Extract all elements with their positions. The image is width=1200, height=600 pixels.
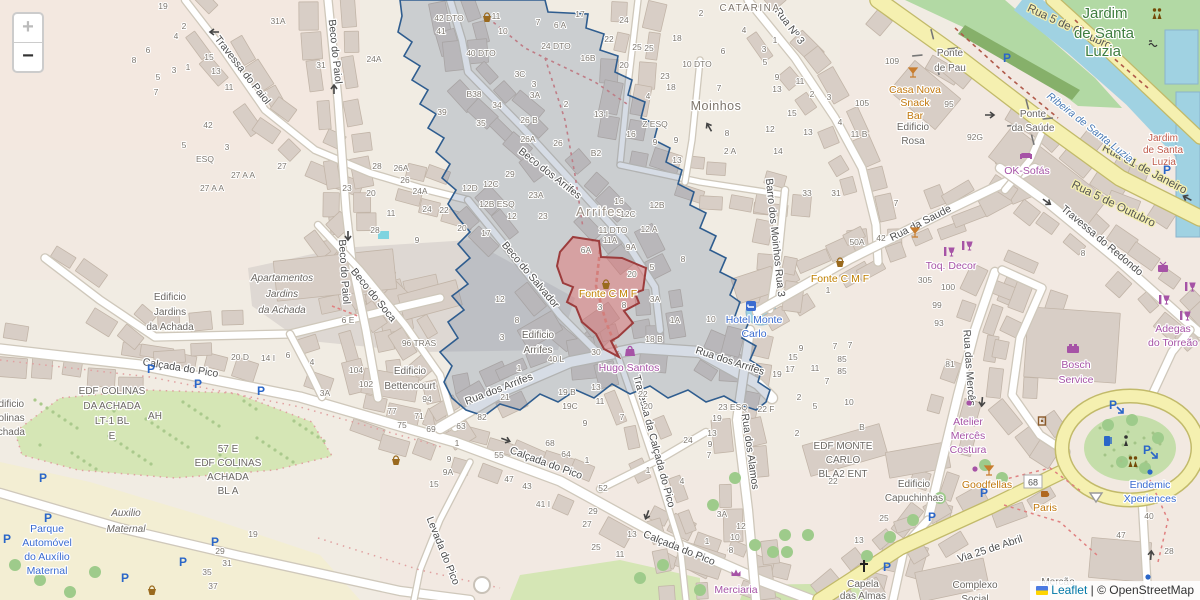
- house-number: 42: [876, 233, 886, 243]
- parking-icon: P: [883, 560, 891, 574]
- building-name-label: Colinas: [0, 413, 25, 424]
- house-number: 23 ESQ: [718, 402, 748, 412]
- zoom-in-button[interactable]: +: [14, 14, 42, 43]
- building-name-label: Jardins: [154, 307, 186, 318]
- house-number: 9: [775, 72, 780, 82]
- poi-name-label: Mercês: [951, 430, 985, 442]
- house-number: 13: [772, 84, 782, 94]
- house-number: 11: [387, 208, 396, 218]
- house-number: 17: [785, 364, 795, 374]
- house-number: 31: [831, 188, 841, 198]
- house-number: 17: [481, 228, 491, 238]
- parking-icon: P: [179, 555, 187, 569]
- building-name-label: AH: [148, 411, 162, 422]
- house-number: 20: [627, 269, 637, 279]
- building-name-label: Capela: [847, 579, 879, 590]
- house-number: 24: [683, 435, 693, 445]
- house-number: 3: [532, 79, 537, 89]
- house-number: 3: [827, 92, 832, 102]
- house-number: Z ESQ: [642, 119, 668, 129]
- oneway-arrow-icon: [704, 122, 714, 133]
- cup-icon: [1041, 491, 1049, 497]
- poi-name-label: Service: [1058, 374, 1093, 386]
- house-number: 29: [505, 169, 515, 179]
- house-number: 1: [186, 62, 191, 72]
- building-name-label: Edificio: [394, 366, 427, 377]
- osm-attribution: © OpenStreetMap: [1097, 583, 1194, 597]
- place-label: CATARINA: [719, 3, 780, 14]
- house-number: 21: [500, 392, 510, 402]
- parking-icon: P: [257, 384, 265, 398]
- house-number: 95: [944, 99, 954, 109]
- svg-text:P: P: [39, 471, 47, 485]
- house-number: 4: [646, 91, 651, 101]
- house-number: 7: [536, 17, 541, 27]
- poi-name-label: do Torreão: [1148, 337, 1198, 349]
- house-number: 27 A A: [231, 170, 255, 180]
- house-number: 4: [838, 117, 843, 127]
- house-number: 8: [1081, 248, 1086, 258]
- park-label: Jardim: [1082, 5, 1127, 22]
- house-number: 19: [248, 529, 258, 539]
- house-number: 52: [598, 483, 608, 493]
- building-name-label: Bettencourt: [384, 381, 435, 392]
- building-name-label: Edificio: [897, 122, 930, 133]
- house-number: 23: [342, 183, 352, 193]
- house-number: 4: [174, 31, 179, 41]
- house-number: 11: [796, 76, 805, 86]
- house-number: 24 DTO: [541, 41, 571, 51]
- house-number: 11: [811, 363, 820, 373]
- house-number: 34: [492, 100, 502, 110]
- house-number: 102: [359, 379, 373, 389]
- poi-name-label: Bosch: [1061, 359, 1090, 371]
- house-number: 1: [455, 438, 460, 448]
- house-number: 8: [725, 128, 730, 138]
- poi-name-label: Paris: [1033, 502, 1057, 514]
- house-number: 2: [797, 392, 802, 402]
- house-number: 5: [156, 72, 161, 82]
- house-number: 40: [1144, 511, 1154, 521]
- house-number: 8: [729, 545, 734, 555]
- house-number: 3: [172, 65, 177, 75]
- building-name-label: EDF MONTE: [814, 441, 873, 452]
- building-name-label: da Saúde: [1012, 123, 1055, 134]
- house-number: 8: [622, 300, 627, 310]
- house-number: 26A: [520, 134, 535, 144]
- house-number: 13: [591, 382, 601, 392]
- house-number: 19: [158, 1, 168, 11]
- parking-icon: P: [121, 571, 129, 585]
- parking-icon: P: [3, 532, 11, 546]
- house-number: 9A: [626, 242, 637, 252]
- house-number: 31: [316, 60, 326, 70]
- building-name-label: Edificio: [898, 479, 931, 490]
- house-number: 20: [643, 401, 653, 411]
- svg-text:P: P: [980, 486, 988, 500]
- house-number: 14 I: [261, 353, 275, 363]
- house-number: 7: [833, 341, 838, 351]
- poi-name-label: Fonte C M F: [579, 288, 637, 300]
- house-number: 27: [582, 519, 592, 529]
- house-number: 82: [477, 412, 487, 422]
- building-name-label: Jardins: [265, 289, 298, 300]
- zoom-control[interactable]: + −: [12, 12, 44, 73]
- house-number: 13: [707, 428, 717, 438]
- house-number: 305: [918, 275, 932, 285]
- poi-name-label: Merciaria: [714, 584, 757, 596]
- house-number: 5: [182, 140, 187, 150]
- dot-icon: [966, 400, 971, 405]
- building-name-label: DA ACHADA: [83, 401, 141, 412]
- house-number: 69: [426, 424, 436, 434]
- building-name-label: 57 E: [218, 444, 239, 455]
- house-number: 105: [855, 98, 869, 108]
- building-name-label: Ponte: [1020, 109, 1047, 120]
- house-number: 3C: [515, 69, 526, 79]
- house-number: 8: [132, 55, 137, 65]
- poi-name-label: Adegas: [1155, 323, 1191, 335]
- poi-name-label: OK-Sofás: [1004, 165, 1050, 177]
- parking-icon: P: [194, 377, 202, 391]
- building-name-label: Ponte: [937, 48, 964, 59]
- house-number: 20 D: [231, 352, 249, 362]
- house-number: 1: [517, 363, 522, 373]
- house-number: 40 DTO: [466, 48, 496, 58]
- house-number: 68: [545, 438, 555, 448]
- poi-name-label: Casa Nova: [889, 84, 941, 96]
- house-number: 25: [591, 542, 601, 552]
- building-name-label: das Almas: [840, 591, 886, 600]
- house-number: 20: [619, 60, 629, 70]
- building-name-label: E: [109, 431, 116, 442]
- svg-text:P: P: [1003, 51, 1011, 65]
- park-label: de Santa: [1074, 25, 1135, 42]
- house-number: 41: [436, 26, 446, 36]
- poi-name-label: Fonte C M F: [811, 273, 869, 285]
- house-number: 41 I: [536, 499, 550, 509]
- house-number: 9: [653, 137, 658, 147]
- house-number: 3A: [650, 294, 661, 304]
- house-number: 25: [879, 513, 889, 523]
- house-number: 9: [674, 135, 679, 145]
- house-number: 5: [650, 262, 655, 272]
- house-number: 9: [415, 235, 420, 245]
- house-number: 22: [439, 205, 449, 215]
- house-number: 93: [934, 318, 944, 328]
- building-name-label: Apartamentos: [250, 273, 313, 284]
- house-number: 10: [730, 532, 740, 542]
- circle-icon: [474, 577, 490, 593]
- building-name-label: LT-1 BL: [95, 416, 130, 427]
- house-number: 11: [492, 11, 501, 21]
- poi-name-label: do Auxílio: [24, 551, 70, 563]
- park-label: Jardim: [1148, 133, 1178, 144]
- house-number: 7: [848, 340, 853, 350]
- house-number: 15: [204, 52, 214, 62]
- house-number: 7: [620, 412, 625, 422]
- house-number: 104: [349, 365, 363, 375]
- dot-icon: [1145, 574, 1150, 579]
- poi-name-label: Bar: [907, 110, 924, 122]
- house-number: 3: [500, 332, 505, 342]
- house-number: 16B: [580, 53, 595, 63]
- house-number: 13 I: [594, 109, 608, 119]
- house-number: 33: [802, 188, 812, 198]
- house-number: 1: [773, 35, 778, 45]
- poi-name-label: Carlo: [741, 328, 766, 340]
- poi-name-label: Costura: [950, 444, 987, 456]
- house-number: 35: [476, 118, 486, 128]
- park-label: Luzia: [1085, 43, 1122, 60]
- poi-name-label: Hugo Santos: [599, 362, 660, 374]
- building-name-label: BL A2 ENT: [818, 469, 867, 480]
- house-number: 19: [712, 413, 722, 423]
- parking-icon: P: [1163, 163, 1171, 177]
- house-number: 29: [588, 506, 598, 516]
- house-number: 6: [286, 350, 291, 360]
- house-number: 39: [437, 107, 447, 117]
- svg-text:P: P: [179, 555, 187, 569]
- house-number: 24A: [412, 186, 427, 196]
- svg-text:P: P: [211, 535, 219, 549]
- house-number: 11: [225, 82, 234, 92]
- house-number: 23: [538, 211, 548, 221]
- house-number: 24A: [366, 54, 381, 64]
- house-number: 6 E: [342, 315, 355, 325]
- building-name-label: Achada: [0, 427, 25, 438]
- svg-text:P: P: [3, 532, 11, 546]
- house-number: 92G: [967, 132, 983, 142]
- house-number: 28: [1164, 546, 1174, 556]
- poi-name-label: Maternal: [27, 565, 68, 577]
- building-name-label: Capuchinhas: [885, 493, 943, 504]
- house-number: 8: [681, 254, 686, 264]
- house-number: 14: [773, 146, 783, 156]
- sign-icon: 68: [1024, 475, 1042, 488]
- house-number: 12B: [649, 200, 664, 210]
- house-number: 40 L: [548, 354, 565, 364]
- house-number: 7: [825, 376, 830, 386]
- house-number: 15: [788, 352, 798, 362]
- fuel-icon: [1104, 436, 1111, 446]
- house-number: 3: [225, 142, 230, 152]
- house-number: 37: [208, 581, 218, 591]
- ukraine-flag-icon: [1036, 586, 1048, 595]
- house-number: 3A: [320, 388, 331, 398]
- house-number: 63: [456, 421, 466, 431]
- house-number: 12B ESQ: [479, 199, 515, 209]
- poi-name-label: Toq. Decor: [926, 260, 977, 272]
- house-number: 19: [772, 369, 782, 379]
- house-number: 4: [310, 357, 315, 367]
- house-number: 1A: [670, 315, 681, 325]
- attribution-bar: Leaflet | © OpenStreetMap: [1030, 581, 1200, 600]
- house-number: 23: [660, 71, 670, 81]
- house-number: 2: [564, 99, 569, 109]
- house-number: 42: [203, 120, 213, 130]
- svg-text:P: P: [928, 510, 936, 524]
- house-number: 42 DTO: [434, 13, 464, 23]
- building-name-label: Edificio: [522, 330, 555, 341]
- house-number: 71: [414, 411, 424, 421]
- poi-name-label: Hotel Monte: [726, 314, 783, 326]
- building-name-label: da Achada: [146, 322, 194, 333]
- house-number: 30: [591, 347, 601, 357]
- building-name-label: Maternal: [107, 524, 147, 535]
- place-label: Arrifes: [576, 204, 624, 219]
- house-number: 47: [1116, 530, 1126, 540]
- house-number: 22 F: [757, 404, 774, 414]
- house-number: 6A: [581, 245, 592, 255]
- house-number: 20: [457, 223, 467, 233]
- house-number: 1: [826, 285, 831, 295]
- building-name-label: da Achada: [258, 305, 306, 316]
- house-number: 4: [742, 25, 747, 35]
- house-number: 27: [277, 161, 287, 171]
- house-number: 19 B: [558, 387, 576, 397]
- house-number: 17: [575, 9, 585, 19]
- building-name-label: BL A: [218, 486, 239, 497]
- house-number: 11: [596, 396, 605, 406]
- building-name-label: EDF COLINAS: [79, 386, 146, 397]
- house-number: 9: [447, 454, 452, 464]
- house-number: 18: [666, 82, 676, 92]
- hotel-icon: [746, 301, 756, 311]
- dot-icon: [972, 466, 977, 471]
- house-number: 5: [763, 57, 768, 67]
- parking-icon: P: [211, 535, 219, 549]
- house-number: 18 B: [645, 334, 663, 344]
- house-number: B: [859, 422, 865, 432]
- house-number: 96 TRAS: [402, 338, 437, 348]
- house-number: 2: [182, 21, 187, 31]
- parking-icon: P: [44, 511, 52, 525]
- parking-icon: P: [1003, 51, 1011, 65]
- house-number: 26: [553, 138, 563, 148]
- house-number: 43: [522, 481, 532, 491]
- house-number: 7: [717, 83, 722, 93]
- house-number: 25: [644, 43, 654, 53]
- dot-icon: [1147, 469, 1152, 474]
- parking-icon: P: [39, 471, 47, 485]
- house-number: 15: [429, 479, 439, 489]
- house-number: 20: [366, 188, 376, 198]
- house-number: ESQ: [196, 154, 214, 164]
- house-number: 81: [945, 359, 955, 369]
- house-number: 7: [154, 87, 159, 97]
- house-number: 12C: [483, 179, 499, 189]
- house-number: 47: [504, 474, 514, 484]
- house-number: 11: [616, 549, 625, 559]
- house-number: 15: [787, 108, 797, 118]
- house-number: 7: [707, 450, 712, 460]
- house-number: 55: [494, 450, 504, 460]
- house-number: 18: [672, 33, 682, 43]
- poi-name-label: Xperiences: [1124, 493, 1177, 505]
- house-number: 94: [422, 394, 432, 404]
- house-number: 6: [721, 46, 726, 56]
- scrub-colinas: [15, 390, 332, 478]
- house-number: 109: [885, 56, 899, 66]
- zoom-out-button[interactable]: −: [14, 43, 42, 71]
- house-number: 31: [222, 558, 232, 568]
- house-number: 13: [854, 535, 864, 545]
- parking-icon: P: [980, 486, 988, 500]
- house-number: 11 DTO: [599, 225, 628, 235]
- house-number: 28: [372, 161, 382, 171]
- house-number: 12: [495, 294, 505, 304]
- svg-text:P: P: [44, 511, 52, 525]
- svg-text:P: P: [257, 384, 265, 398]
- house-number: 31A: [270, 16, 285, 26]
- house-number: 24: [619, 15, 629, 25]
- house-number: 22: [604, 34, 614, 44]
- house-number: 11 B: [851, 129, 868, 139]
- house-number: 4: [680, 476, 685, 486]
- house-number: 11A: [603, 235, 618, 245]
- house-number: 12: [736, 521, 746, 531]
- house-number: 23A: [528, 190, 543, 200]
- house-number: 10 DTO: [682, 59, 712, 69]
- svg-text:P: P: [194, 377, 202, 391]
- house-number: 2 A: [724, 146, 737, 156]
- svg-text:P: P: [147, 362, 155, 376]
- house-number: 28: [370, 225, 380, 235]
- house-number: 100: [941, 282, 955, 292]
- building-name-label: Auxilio: [110, 508, 141, 519]
- building-name-label: ACHADA: [207, 472, 249, 483]
- building-name-label: Complexo: [952, 580, 997, 591]
- house-number: 13: [211, 66, 221, 76]
- map-canvas[interactable]: Beco dos ArrifesBeco do SalvadorBeco do …: [0, 0, 1200, 600]
- house-number: 10: [498, 26, 508, 36]
- building-name-label: Edificio: [0, 399, 25, 410]
- house-number: 2: [699, 8, 704, 18]
- house-number: 2: [795, 428, 800, 438]
- house-number: 75: [397, 420, 407, 430]
- park-label: de Santa: [1143, 145, 1183, 156]
- house-number: 85: [837, 354, 847, 364]
- house-number: 16: [626, 129, 636, 139]
- house-number: 2: [810, 89, 815, 99]
- house-number: 26: [400, 175, 410, 185]
- building-name-label: Social: [961, 594, 988, 600]
- house-number: 35: [202, 567, 212, 577]
- building-name-label: CARLO: [826, 455, 861, 466]
- house-number: 10: [706, 314, 716, 324]
- leaflet-link[interactable]: Leaflet: [1051, 583, 1087, 597]
- parking-icon: P: [928, 510, 936, 524]
- svg-text:P: P: [1109, 398, 1117, 412]
- house-number: 64: [561, 449, 571, 459]
- house-number: 3: [762, 44, 767, 54]
- house-number: 22: [828, 476, 838, 486]
- svg-text:68: 68: [1028, 478, 1038, 488]
- building-name-label: Edificio: [154, 292, 187, 303]
- house-number: 19C: [562, 401, 578, 411]
- house-number: 5: [813, 401, 818, 411]
- house-number: 12: [507, 211, 517, 221]
- house-number: 1: [646, 465, 651, 475]
- house-number: 10: [844, 397, 854, 407]
- house-number: 50A: [849, 237, 864, 247]
- poi-name-label: Endemic: [1130, 479, 1171, 491]
- poi-name-label: Snack: [900, 97, 930, 109]
- leaflet-map[interactable]: Beco dos ArrifesBeco do SalvadorBeco do …: [0, 0, 1200, 600]
- building-name-label: Rosa: [901, 136, 925, 147]
- house-number: 85: [837, 366, 847, 376]
